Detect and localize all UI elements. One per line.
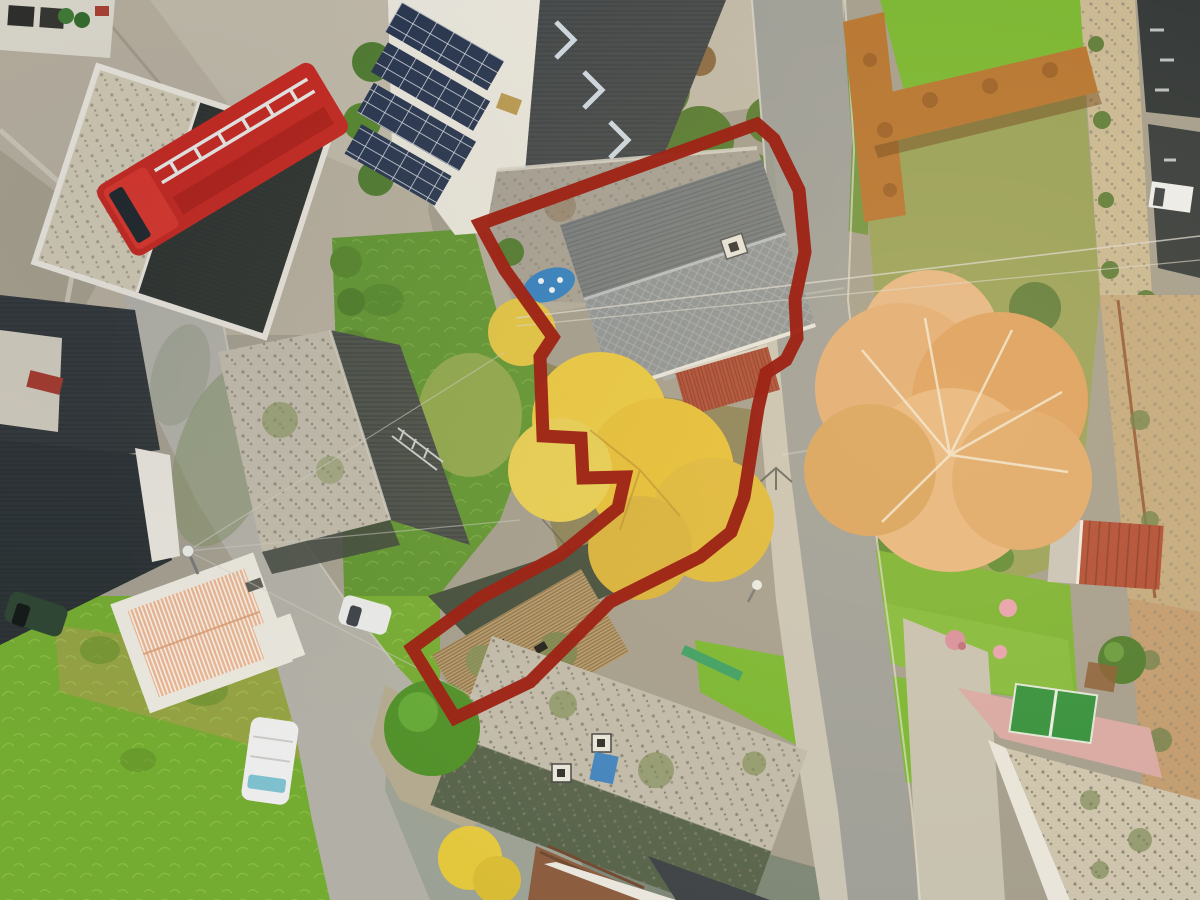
aerial-photo bbox=[0, 0, 1200, 900]
aerial-photo-canvas bbox=[0, 0, 1200, 900]
shade-overlay bbox=[0, 0, 1200, 900]
